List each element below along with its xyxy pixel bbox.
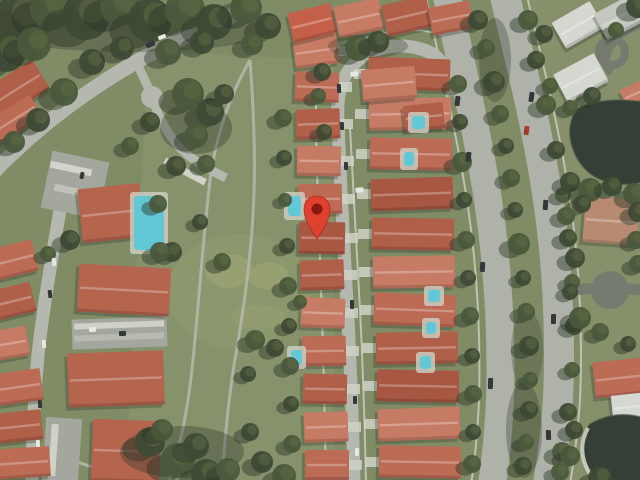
map-viewport[interactable] xyxy=(0,0,640,480)
satellite-map xyxy=(0,0,640,480)
